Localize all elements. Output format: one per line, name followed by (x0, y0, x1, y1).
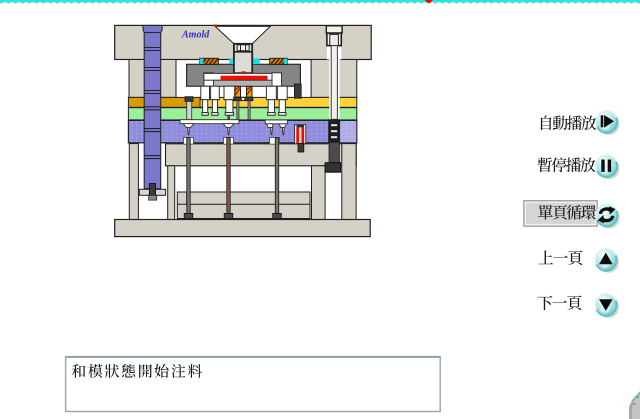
svg-text:Amold: Amold (181, 30, 210, 41)
